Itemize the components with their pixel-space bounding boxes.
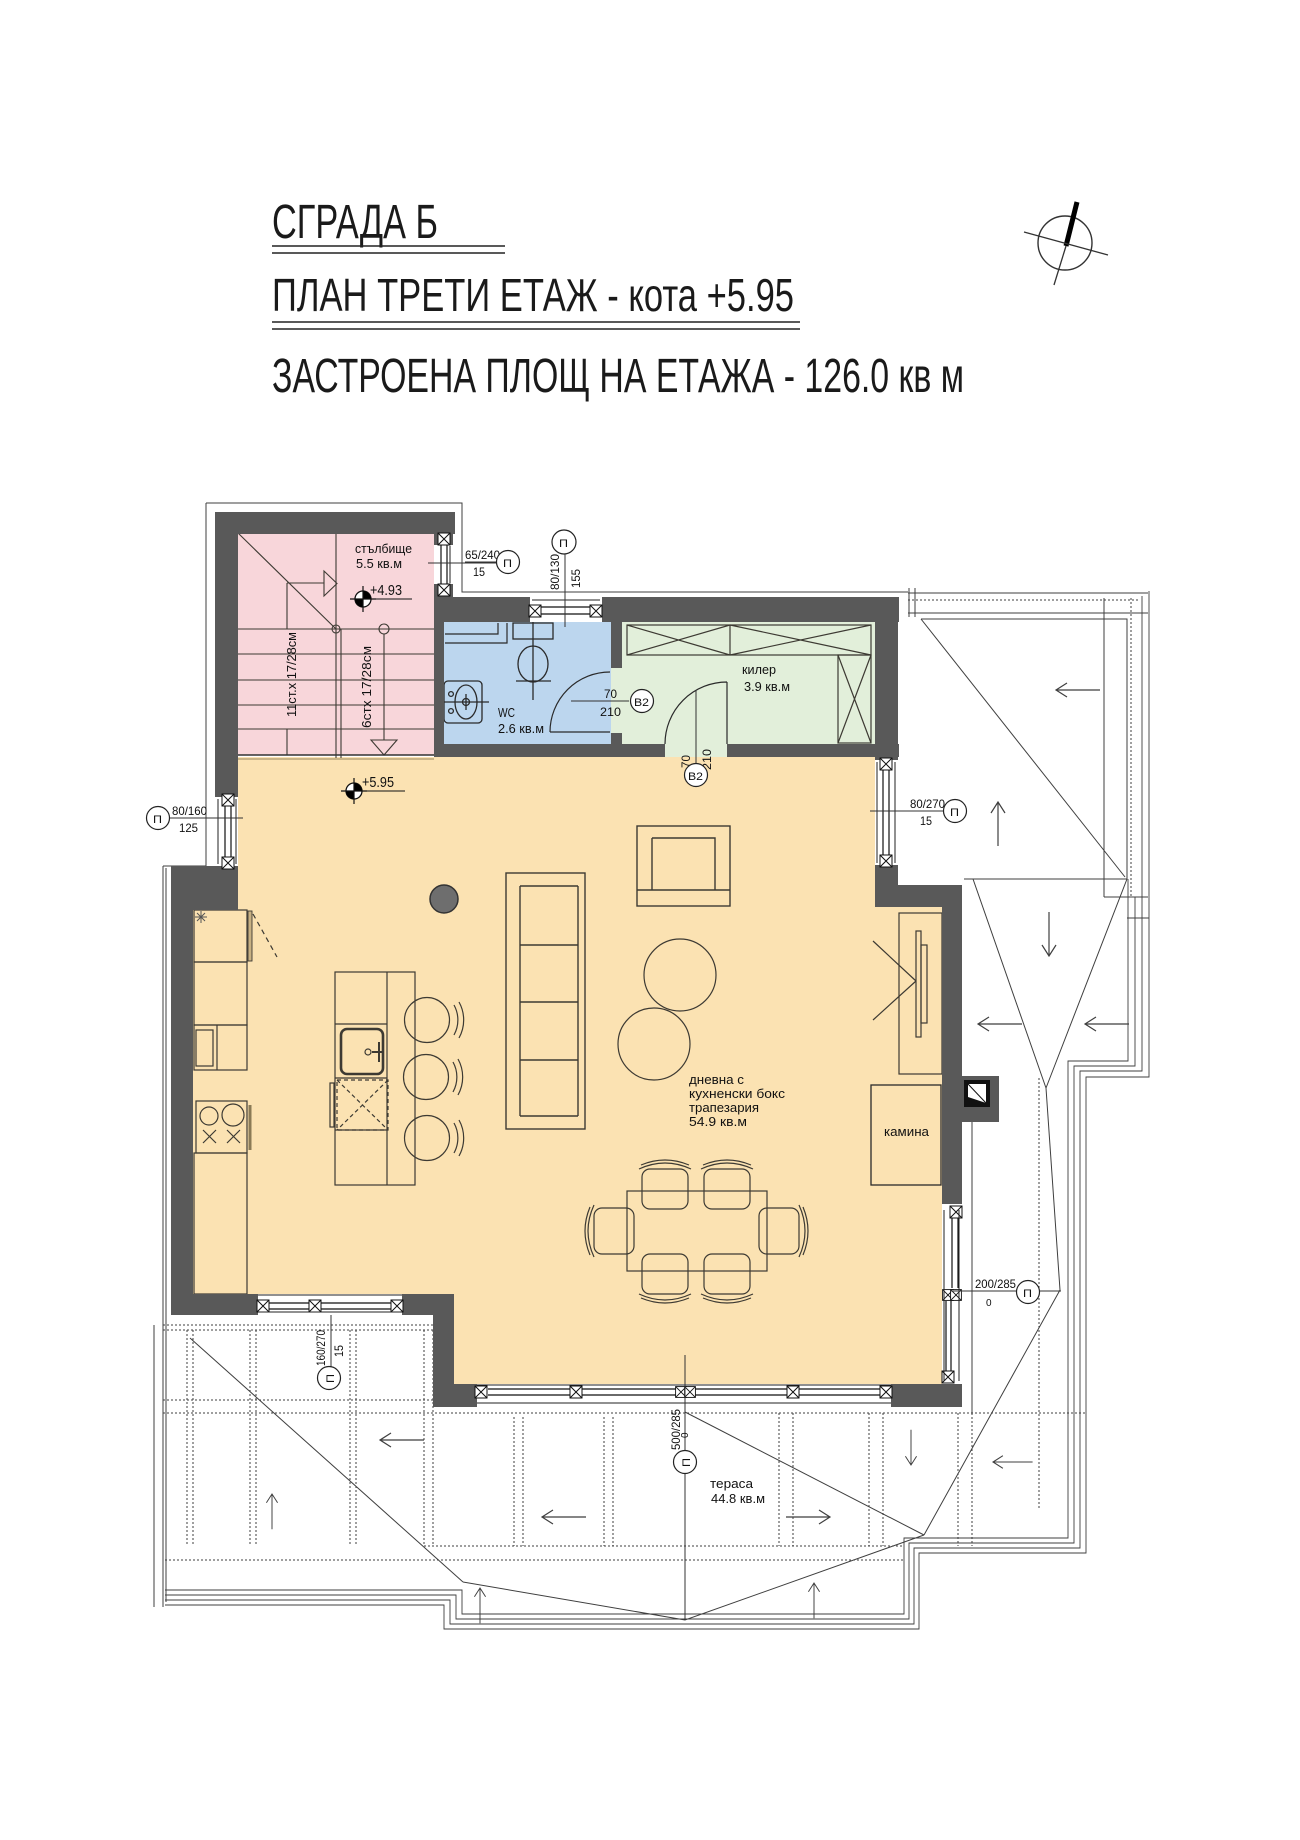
svg-text:11ст.х 17/28см: 11ст.х 17/28см xyxy=(285,632,299,717)
svg-text:2.6 кв.м: 2.6 кв.м xyxy=(498,722,544,736)
svg-text:0: 0 xyxy=(986,1298,992,1309)
svg-text:В2: В2 xyxy=(688,771,703,783)
svg-text:СГРАДА Б: СГРАДА Б xyxy=(272,196,438,249)
svg-text:ПЛАН ТРЕТИ ЕТАЖ - кота +5.95: ПЛАН ТРЕТИ ЕТАЖ - кота +5.95 xyxy=(272,269,794,321)
svg-text:П: П xyxy=(559,538,568,550)
svg-text:80/160: 80/160 xyxy=(172,804,207,818)
svg-text:П: П xyxy=(153,814,162,826)
svg-text:500/285: 500/285 xyxy=(669,1409,683,1450)
svg-text:дневна с: дневна с xyxy=(689,1073,744,1087)
svg-text:трапезария: трапезария xyxy=(689,1101,759,1115)
svg-text:15: 15 xyxy=(332,1345,346,1357)
svg-text:70: 70 xyxy=(604,687,617,701)
svg-text:WC: WC xyxy=(498,706,515,720)
svg-text:П: П xyxy=(950,807,959,819)
svg-text:кухненски бокс: кухненски бокс xyxy=(689,1087,785,1101)
svg-text:тераса: тераса xyxy=(710,1477,753,1491)
svg-text:5.5 кв.м: 5.5 кв.м xyxy=(356,557,402,571)
svg-text:П: П xyxy=(503,558,512,570)
svg-text:ЗАСТРОЕНА ПЛОЩ НА ЕТАЖА - 126.: ЗАСТРОЕНА ПЛОЩ НА ЕТАЖА - 126.0 кв м xyxy=(272,350,964,403)
svg-text:125: 125 xyxy=(179,821,198,835)
svg-text:П: П xyxy=(681,1458,693,1467)
svg-text:0: 0 xyxy=(680,1432,691,1438)
svg-text:200/285: 200/285 xyxy=(975,1277,1016,1291)
svg-text:160/270: 160/270 xyxy=(314,1330,328,1366)
svg-text:В2: В2 xyxy=(634,697,649,709)
svg-text:210: 210 xyxy=(600,705,621,719)
svg-text:3.9 кв.м: 3.9 кв.м xyxy=(744,680,790,694)
svg-text:54.9 кв.м: 54.9 кв.м xyxy=(689,1115,747,1129)
svg-text:килер: килер xyxy=(742,663,776,677)
svg-text:стълбище: стълбище xyxy=(355,542,412,556)
svg-text:80/130: 80/130 xyxy=(548,554,562,590)
svg-text:6стх 17/28см: 6стх 17/28см xyxy=(360,646,374,728)
svg-text:155: 155 xyxy=(569,569,583,588)
svg-text:15: 15 xyxy=(920,814,932,828)
svg-text:+4.93: +4.93 xyxy=(370,582,402,599)
svg-text:П: П xyxy=(1023,1288,1032,1300)
svg-text:15: 15 xyxy=(473,565,485,579)
svg-text:+5.95: +5.95 xyxy=(362,774,394,791)
svg-text:камина: камина xyxy=(884,1125,929,1139)
svg-text:65/240: 65/240 xyxy=(465,548,500,562)
svg-text:44.8 кв.м: 44.8 кв.м xyxy=(711,1492,765,1506)
svg-text:80/270: 80/270 xyxy=(910,797,945,811)
svg-text:П: П xyxy=(325,1374,337,1383)
